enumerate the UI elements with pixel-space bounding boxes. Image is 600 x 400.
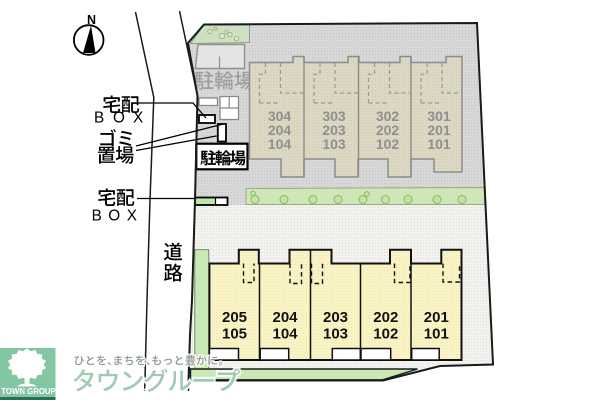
svg-text:101: 101 [424, 326, 449, 343]
svg-text:B: B [92, 208, 102, 225]
svg-text:104: 104 [268, 136, 292, 152]
svg-text:TOWN GROUP: TOWN GROUP [1, 387, 55, 396]
svg-text:105: 105 [222, 326, 247, 343]
svg-text:102: 102 [373, 326, 398, 343]
svg-text:X: X [133, 110, 143, 127]
svg-text:B: B [94, 110, 104, 127]
svg-text:103: 103 [322, 136, 346, 152]
svg-text:N: N [87, 13, 96, 27]
svg-text:203: 203 [323, 309, 348, 326]
svg-text:201: 201 [424, 309, 449, 326]
svg-text:X: X [127, 208, 137, 225]
svg-text:202: 202 [373, 309, 398, 326]
svg-text:O: O [108, 208, 120, 225]
svg-text:204: 204 [272, 309, 298, 326]
svg-text:205: 205 [222, 309, 247, 326]
svg-text:103: 103 [323, 326, 348, 343]
svg-text:101: 101 [427, 136, 451, 152]
svg-text:O: O [113, 110, 125, 127]
svg-text:104: 104 [272, 326, 298, 343]
svg-text:102: 102 [376, 136, 400, 152]
